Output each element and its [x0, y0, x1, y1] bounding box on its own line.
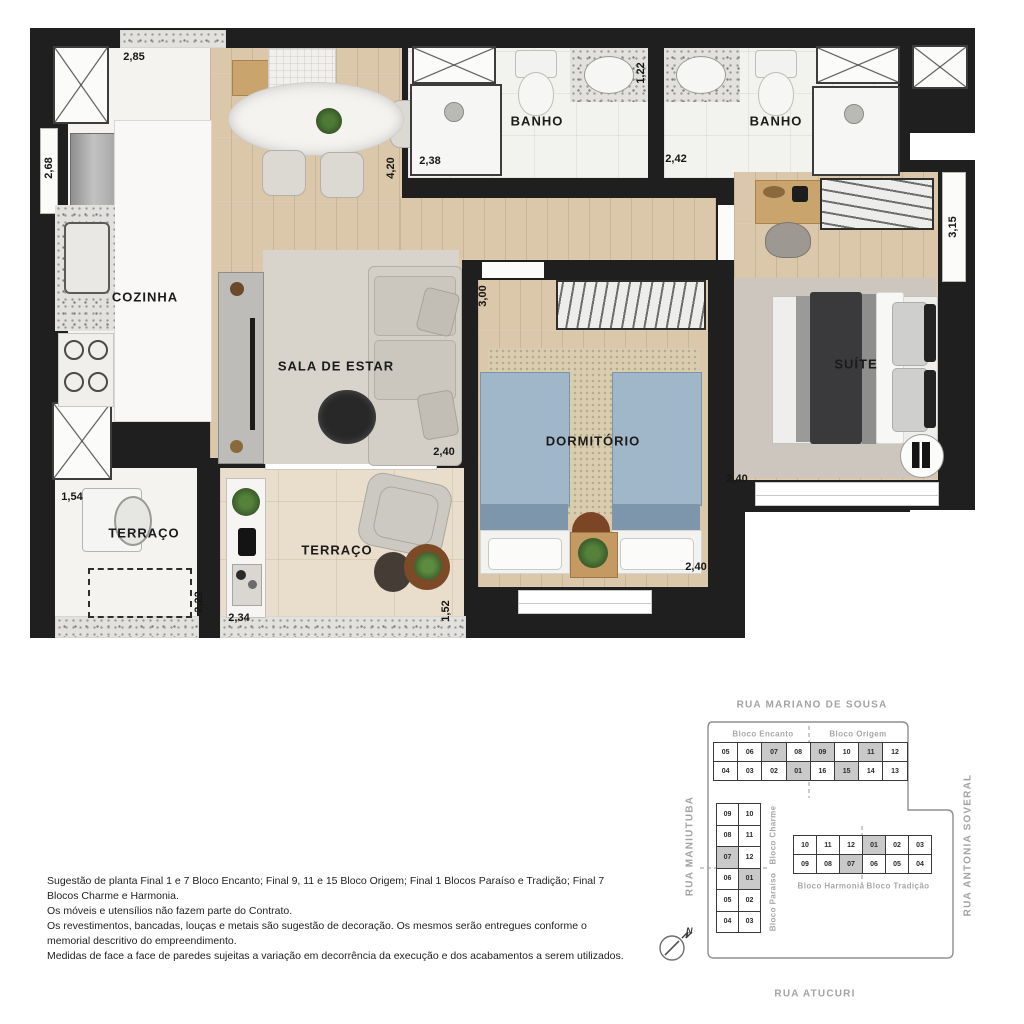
street-right: RUA ANTONIA SOVERAL — [963, 774, 974, 917]
unit-cell: 11 — [816, 835, 840, 855]
unit-cell: 11 — [858, 742, 883, 762]
tv-console — [218, 272, 264, 464]
block-label: Bloco Charme — [769, 805, 778, 864]
toilet-1-bowl — [518, 72, 554, 116]
dimension-label: 2,68 — [43, 157, 55, 178]
dining-chair — [262, 150, 306, 196]
shaft-box-kitchen — [52, 402, 112, 480]
street-bottom: RUA ATUCURI — [774, 989, 855, 1000]
ottoman — [318, 390, 376, 444]
block-label: Bloco Paraíso — [769, 873, 778, 932]
unit-cell: 09 — [793, 854, 817, 874]
suite-pillow — [892, 302, 928, 366]
dimension-label: 2,40 — [726, 473, 747, 485]
unit-cell: 02 — [885, 835, 909, 855]
dimension-label: 2,34 — [228, 612, 249, 624]
unit-cell: 03 — [908, 835, 932, 855]
dimension-label: 3,15 — [947, 216, 959, 237]
street-left: RUA MANIUTUBA — [685, 796, 696, 896]
compass-icon — [660, 936, 684, 960]
disclaimer-text: Sugestão de planta Final 1 e 7 Bloco Enc… — [47, 874, 647, 964]
twin-bed-2-pillow — [620, 538, 694, 570]
disclaimer-line: Medidas de face a face de paredes sujeit… — [47, 949, 647, 964]
unit-cell: 12 — [839, 835, 863, 855]
cart-plant — [232, 488, 260, 516]
cart-tray-item — [248, 580, 257, 589]
unit-cell: 06 — [737, 742, 762, 762]
unit-cell: 08 — [816, 854, 840, 874]
unit-cell: 12 — [882, 742, 907, 762]
room-label-dormitorio: DORMITÓRIO — [546, 434, 641, 449]
dimension-label: 3,00 — [477, 285, 489, 306]
unit-cell: 04 — [713, 761, 738, 781]
shaft-box-bath2 — [816, 46, 900, 84]
console-decor — [230, 282, 244, 296]
dimension-label: 4,20 — [385, 157, 397, 178]
kitchen-top-window — [120, 30, 226, 48]
block-label: Bloco Harmonia — [798, 882, 865, 891]
dimension-label: 1,54 — [61, 491, 82, 503]
dimension-label: 2,40 — [685, 561, 706, 573]
suite-window — [755, 482, 939, 506]
disclaimer-line: memorial descritivo do empreendimento. — [47, 934, 647, 949]
unit-cell: 07 — [839, 854, 863, 874]
unit-cell: 09 — [716, 803, 739, 826]
room-label-banho-2: BANHO — [750, 114, 803, 129]
unit-cell: 08 — [786, 742, 811, 762]
suite-chair — [765, 222, 811, 258]
unit-cell: 14 — [858, 761, 883, 781]
table-plant-2 — [414, 552, 442, 580]
shaft-box-bath1 — [412, 46, 496, 84]
unit-cell: 07 — [761, 742, 786, 762]
twin-bed-1-strip — [480, 504, 568, 530]
unit-cell: 01 — [862, 835, 886, 855]
unit-cell: 06 — [862, 854, 886, 874]
shaft-box-corner — [912, 45, 968, 89]
compass-n-label: N — [686, 926, 693, 936]
unit-cell: 03 — [737, 761, 762, 781]
unit-cell: 12 — [738, 846, 761, 869]
dimension-label: 2,85 — [123, 51, 144, 63]
room-label-banho-1: BANHO — [511, 114, 564, 129]
dining-chair — [320, 152, 364, 198]
bedroom-door-gap — [482, 262, 544, 278]
unit-cell: 10 — [834, 742, 859, 762]
bedroom-window — [518, 590, 652, 614]
suite-pillow — [892, 368, 928, 432]
disclaimer-line: Os móveis e utensílios não fazem parte d… — [47, 904, 647, 919]
suite-desk — [755, 180, 821, 224]
cart-tray-item — [236, 570, 246, 580]
console-decor — [230, 440, 243, 453]
street-top: RUA MARIANO DE SOUSA — [737, 700, 888, 711]
unit-cell: 05 — [885, 854, 909, 874]
cart-bottle — [238, 528, 256, 556]
disclaimer-line: Os revestimentos, bancadas, louças e met… — [47, 919, 647, 934]
bedroom-closet — [556, 280, 706, 330]
unit-cell: 07 — [716, 846, 739, 869]
room-label-terraco-servico: TERRAÇO — [108, 526, 179, 541]
twin-bed-1-pillow — [488, 538, 562, 570]
kitchen-sink — [64, 222, 110, 294]
suite-pillow-dark — [924, 370, 936, 428]
dimension-label: 2,42 — [665, 153, 686, 165]
dimension-label: 2,40 — [433, 446, 454, 458]
dimension-label: 1,22 — [635, 62, 647, 83]
unit-cell: 04 — [908, 854, 932, 874]
unit-cell: 15 — [834, 761, 859, 781]
table-plant — [316, 108, 342, 134]
unit-cell: 01 — [786, 761, 811, 781]
service-terrace-sill — [55, 616, 199, 638]
unit-cell: 04 — [716, 911, 739, 934]
room-label-sala-de-estar: SALA DE ESTAR — [278, 359, 394, 374]
burner-icon — [88, 340, 108, 360]
unit-cell: 01 — [738, 868, 761, 891]
unit-cell: 10 — [738, 803, 761, 826]
block-label: Bloco Encanto — [732, 730, 793, 739]
dimension-label: 1,52 — [440, 600, 452, 621]
planter-plant — [578, 538, 608, 568]
unit-cell: 08 — [716, 825, 739, 848]
shower-2 — [812, 86, 900, 176]
suite-blanket-gray — [796, 296, 810, 442]
shower-head-icon — [844, 104, 864, 124]
unit-cell: 06 — [716, 868, 739, 891]
unit-cell: 02 — [761, 761, 786, 781]
desk-item — [792, 186, 808, 202]
unit-cell: 10 — [793, 835, 817, 855]
burner-icon — [64, 372, 84, 392]
unit-cell: 05 — [716, 889, 739, 912]
suite-closet — [820, 178, 934, 230]
shower-head-icon — [444, 102, 464, 122]
block-label: Bloco Origem — [829, 730, 886, 739]
unit-cell: 03 — [738, 911, 761, 934]
unit-cell: 02 — [738, 889, 761, 912]
book-icon — [912, 442, 930, 468]
sink-1 — [584, 56, 634, 94]
kitchen-counter — [114, 120, 212, 422]
tv-screen — [250, 318, 255, 430]
twin-bed-2-strip — [612, 504, 700, 530]
burner-icon — [64, 340, 84, 360]
room-label-cozinha: COZINHA — [112, 290, 178, 305]
shaft-box-top-left — [53, 46, 109, 124]
disclaimer-line: Blocos Charme e Harmonia. — [47, 889, 647, 904]
burner-icon — [88, 372, 108, 392]
desk-item — [763, 186, 785, 198]
unit-cell: 11 — [738, 825, 761, 848]
unit-cell: 16 — [810, 761, 835, 781]
future-cabinet-dashed — [88, 568, 192, 618]
unit-cell: 13 — [882, 761, 907, 781]
unit-cell: 05 — [713, 742, 738, 762]
toilet-2-bowl — [758, 72, 794, 116]
suite-door-gap — [718, 205, 734, 260]
dimension-label: 2,38 — [419, 155, 440, 167]
block-label: Bloco Tradição — [867, 882, 930, 891]
suite-pillow-dark — [924, 304, 936, 362]
dimension-label: 2,22 — [193, 591, 205, 612]
sofa-pillow — [416, 389, 459, 441]
room-label-terraco: TERRAÇO — [301, 543, 372, 558]
terrace-sill — [220, 616, 466, 638]
disclaimer-line: Sugestão de planta Final 1 e 7 Bloco Enc… — [47, 874, 647, 889]
floor-plan-page: COZINHASALA DE ESTARBANHOBANHODORMITÓRIO… — [0, 0, 1024, 1024]
unit-cell: 09 — [810, 742, 835, 762]
sink-2 — [676, 56, 726, 94]
room-label-suite: SUÍTE — [834, 357, 877, 372]
cart-tray — [232, 564, 262, 606]
